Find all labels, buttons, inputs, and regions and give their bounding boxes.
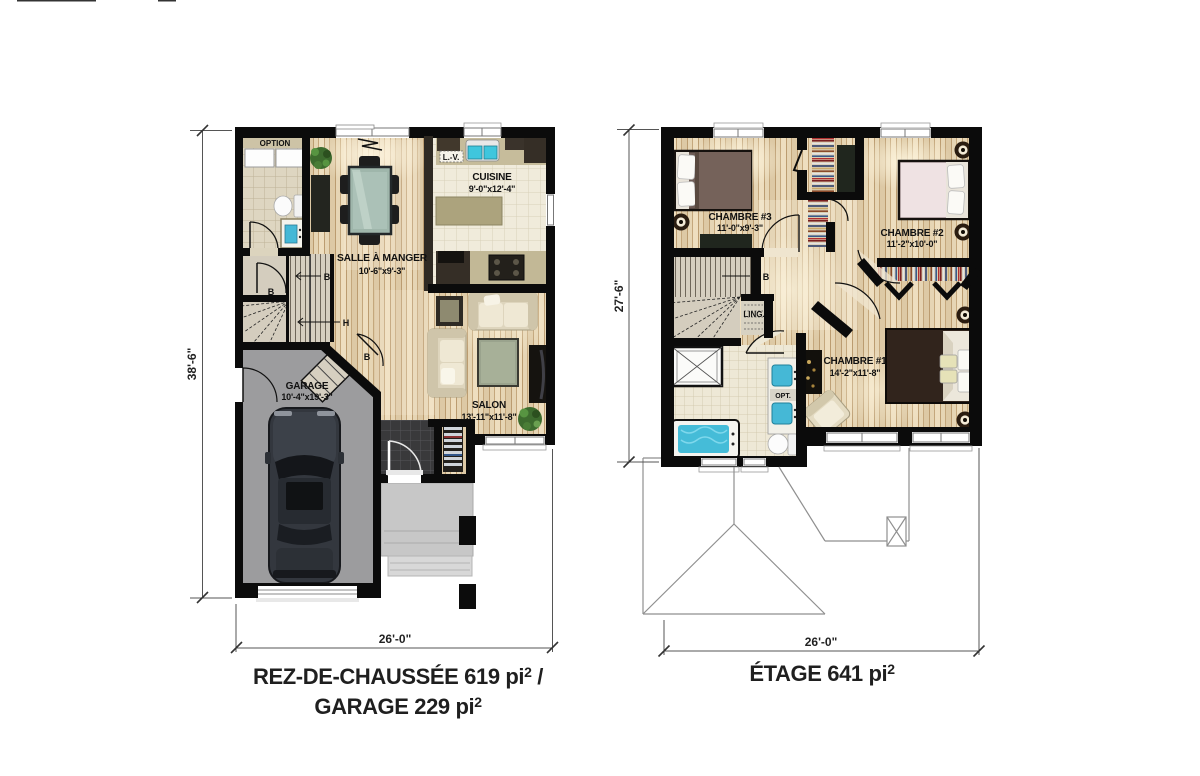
svg-text:B: B xyxy=(763,272,770,282)
svg-text:CUISINE: CUISINE xyxy=(472,172,512,183)
svg-text:10'-6"x9'-3": 10'-6"x9'-3" xyxy=(359,266,405,276)
svg-text:CHAMBRE #2: CHAMBRE #2 xyxy=(880,228,944,239)
svg-text:B: B xyxy=(364,352,371,362)
svg-text:9'-0"x12'-4": 9'-0"x12'-4" xyxy=(469,184,515,194)
svg-text:OPT.: OPT. xyxy=(775,393,791,400)
svg-text:LING.: LING. xyxy=(743,310,764,319)
svg-text:11'-0"x9'-3": 11'-0"x9'-3" xyxy=(717,223,763,233)
svg-text:13'-11"x11'-8": 13'-11"x11'-8" xyxy=(461,412,516,422)
svg-text:SALLE À MANGER: SALLE À MANGER xyxy=(337,251,428,264)
svg-text:OPTION: OPTION xyxy=(260,139,291,148)
svg-text:GARAGE 229 pi2: GARAGE 229 pi2 xyxy=(314,694,482,719)
svg-text:10'-4"x19'-3": 10'-4"x19'-3" xyxy=(281,392,332,402)
svg-text:SALON: SALON xyxy=(472,400,506,411)
svg-text:H: H xyxy=(343,318,350,328)
svg-text:26'-0": 26'-0" xyxy=(379,632,412,646)
svg-text:CHAMBRE #1: CHAMBRE #1 xyxy=(823,356,887,367)
svg-text:11'-2"x10'-0": 11'-2"x10'-0" xyxy=(887,239,938,249)
svg-text:27'-6": 27'-6" xyxy=(612,280,626,313)
svg-text:B: B xyxy=(324,272,331,282)
svg-text:ÉTAGE 641 pi2: ÉTAGE 641 pi2 xyxy=(749,661,895,686)
svg-text:14'-2"x11'-8": 14'-2"x11'-8" xyxy=(830,368,881,378)
svg-text:26'-0": 26'-0" xyxy=(805,635,838,649)
svg-text:REZ-DE-CHAUSSÉE 619 pi2 /: REZ-DE-CHAUSSÉE 619 pi2 / xyxy=(253,664,543,689)
svg-text:38'-6": 38'-6" xyxy=(185,348,199,381)
svg-text:CHAMBRE #3: CHAMBRE #3 xyxy=(708,212,772,223)
svg-text:GARAGE: GARAGE xyxy=(286,381,329,392)
svg-text:L.-V.: L.-V. xyxy=(443,153,460,162)
